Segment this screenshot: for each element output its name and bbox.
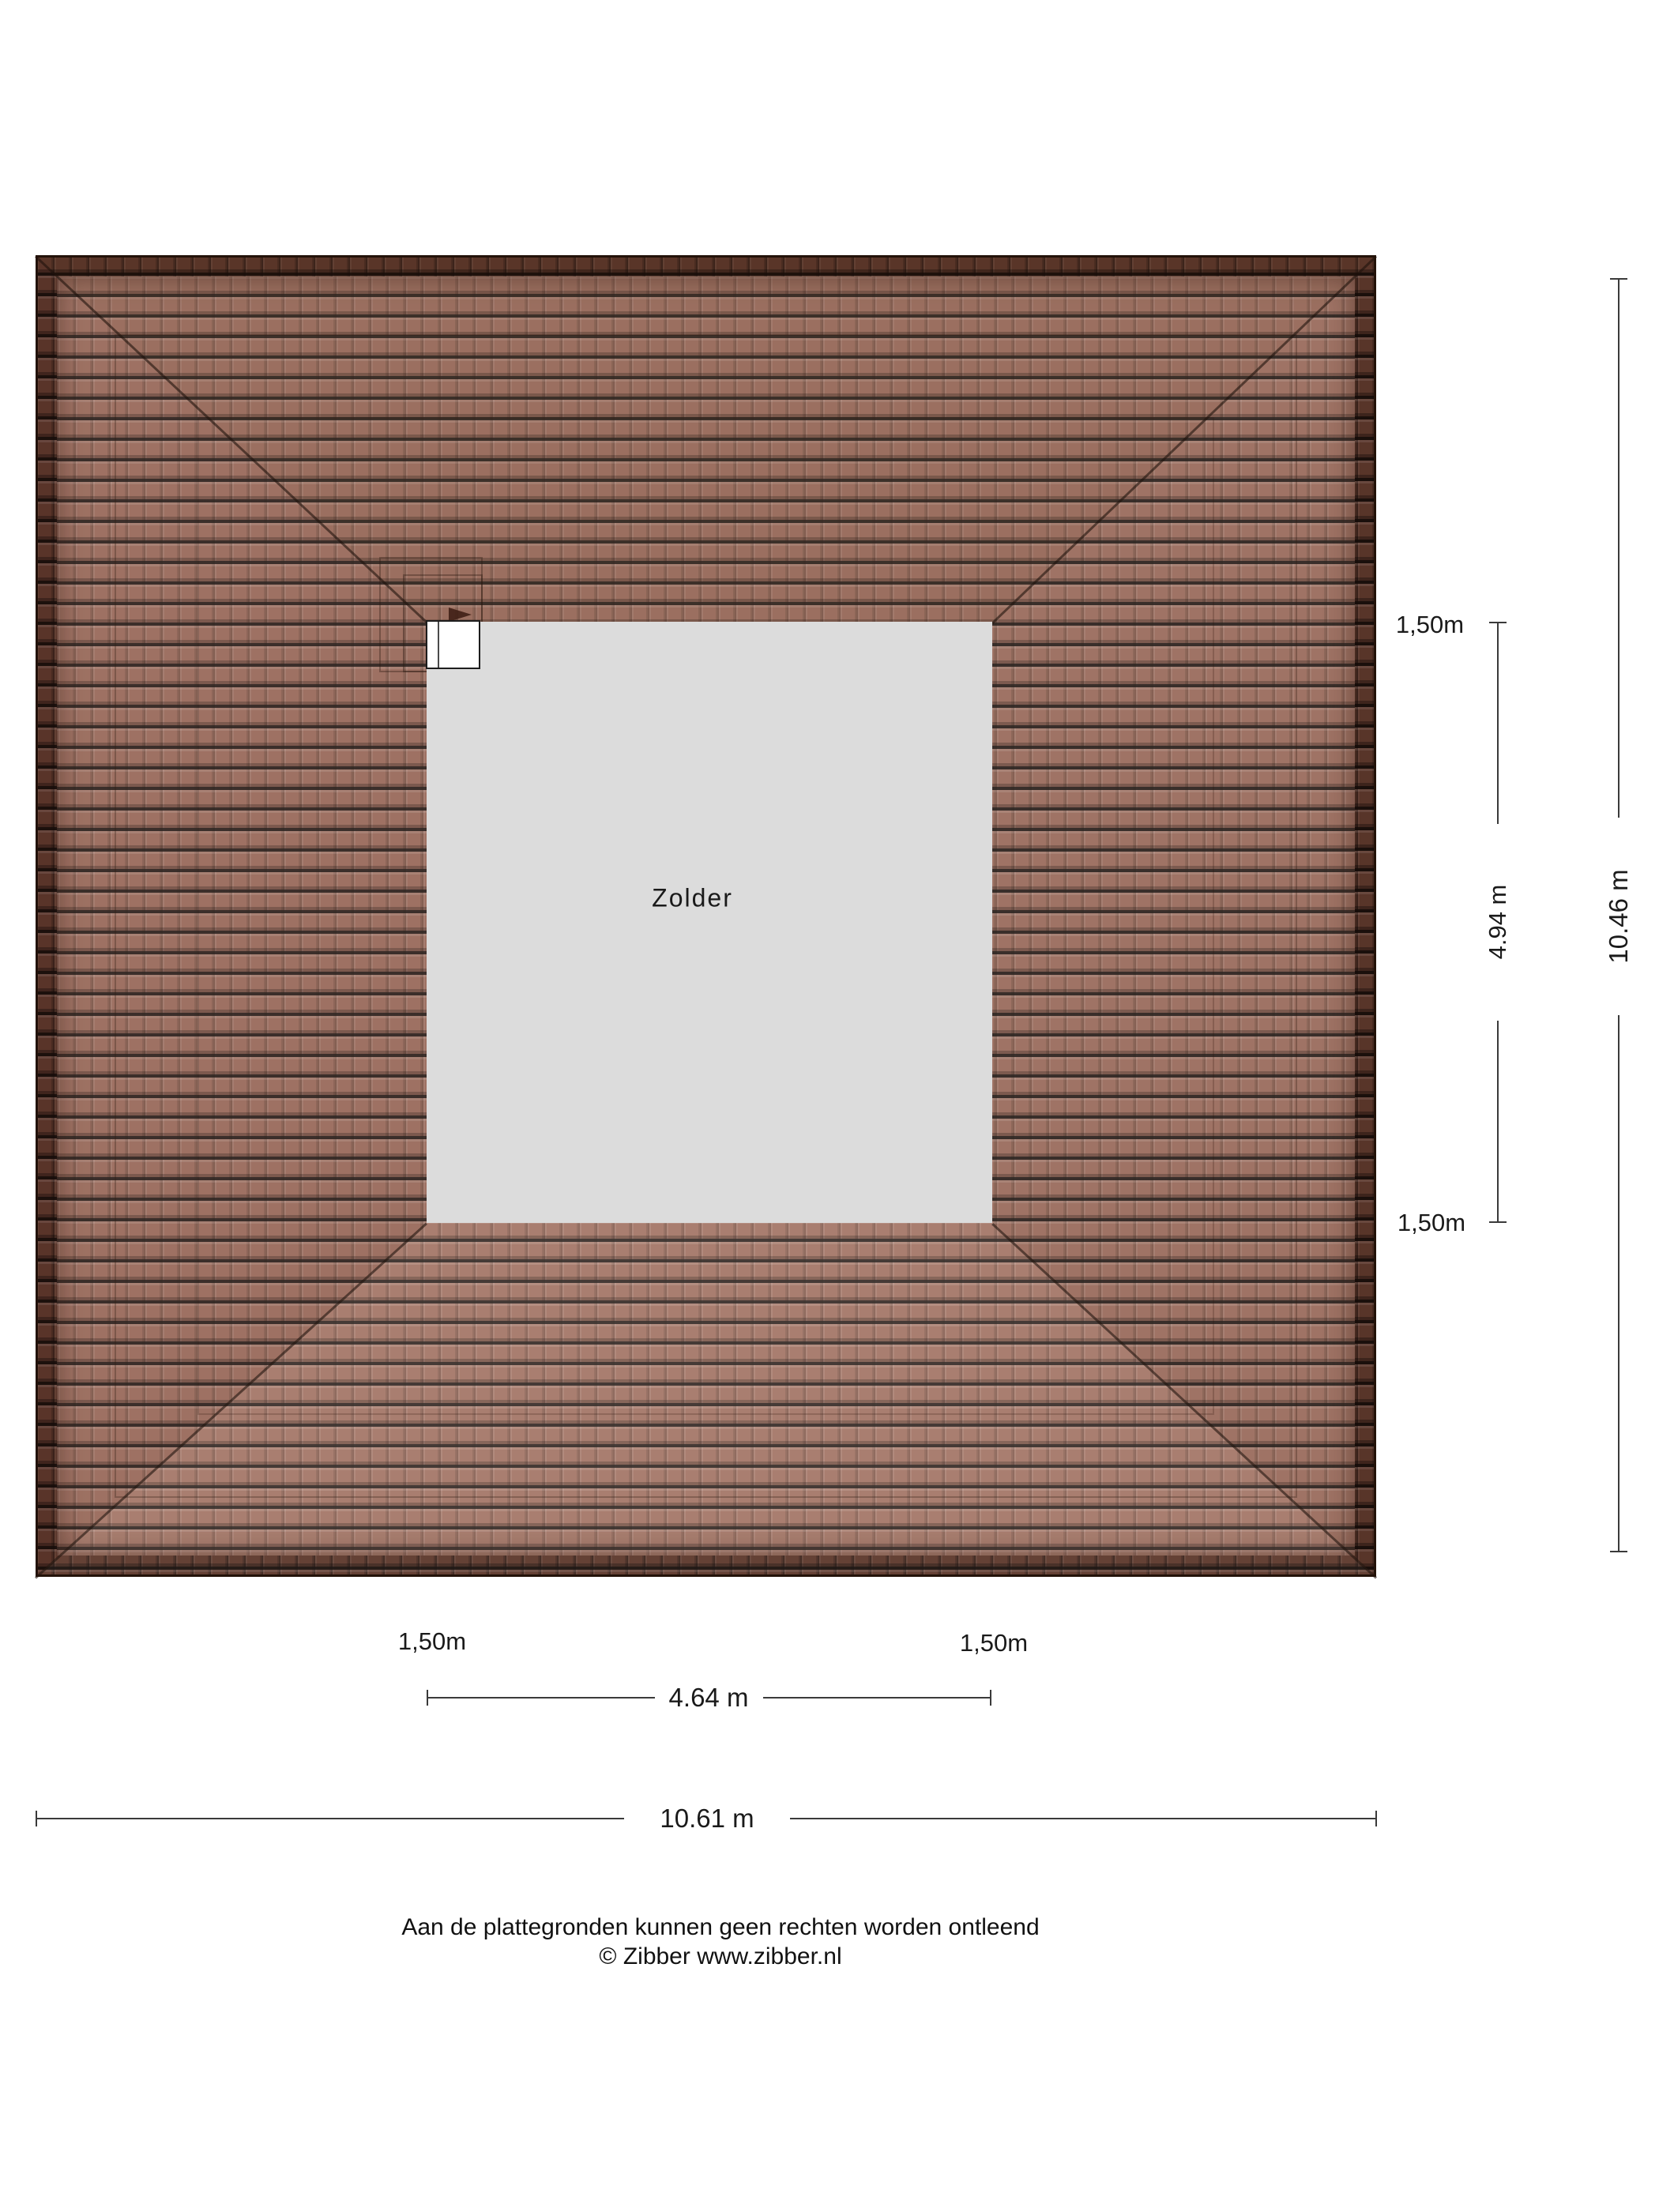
offset-label-right-bottom: 1,50m	[1398, 1209, 1465, 1237]
dim-464-segment-right	[763, 1697, 990, 1698]
footer-copyright: © Zibber www.zibber.nl	[599, 1943, 841, 1970]
floorplan-canvas: Zolder 4.94 m 1,50m 1,50m 10.46 m 1,50m …	[0, 0, 1659, 2212]
dim-1046-tick-bottom	[1610, 1551, 1627, 1552]
offset-label-bottom-left: 1,50m	[398, 1627, 466, 1656]
roof-plan: Zolder	[36, 255, 1376, 1577]
offset-label-right-top: 1,50m	[1396, 611, 1464, 639]
skylight-window	[426, 620, 480, 669]
dim-464-segment-left	[427, 1697, 655, 1698]
room-zolder: Zolder	[427, 622, 992, 1223]
dim-494-label: 4.94 m	[1484, 885, 1512, 960]
dim-494-segment-bottom	[1497, 1021, 1499, 1222]
dim-1046-segment-bottom	[1618, 1015, 1619, 1552]
offset-label-bottom-right: 1,50m	[960, 1629, 1028, 1657]
dim-464-label: 4.64 m	[669, 1683, 749, 1713]
dim-1046-label: 10.46 m	[1604, 869, 1634, 963]
skylight-divider	[438, 622, 439, 668]
dim-1061-segment-right	[790, 1818, 1375, 1819]
dim-494-segment-top	[1497, 623, 1499, 824]
dim-1061-tick-right	[1375, 1811, 1377, 1826]
dim-1046-segment-top	[1618, 279, 1619, 818]
dim-464-tick-right	[990, 1690, 991, 1706]
room-label: Zolder	[652, 884, 733, 913]
dim-1061-segment-left	[36, 1818, 624, 1819]
footer-disclaimer: Aan de plattegronden kunnen geen rechten…	[401, 1914, 1039, 1941]
dim-494-tick-bottom	[1489, 1221, 1507, 1223]
dim-1061-label: 10.61 m	[660, 1804, 754, 1834]
